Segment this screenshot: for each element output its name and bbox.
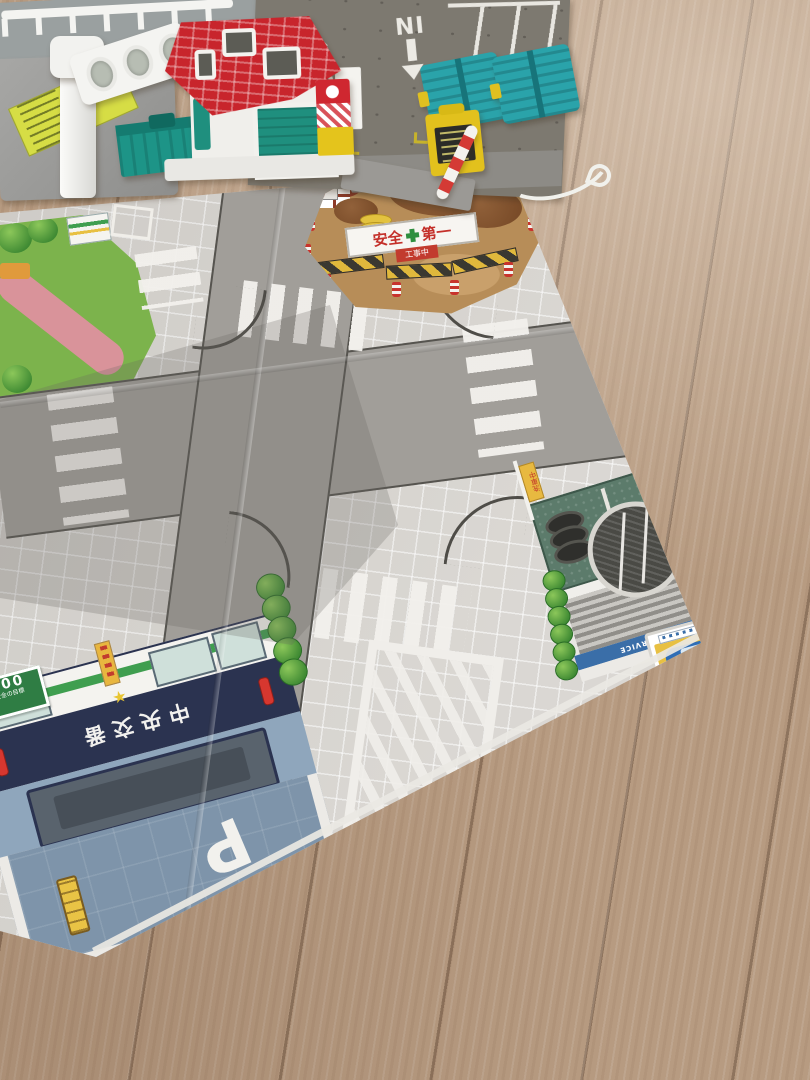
signal-socket [82,52,121,95]
traffic-cone [504,262,513,277]
police-station-block: 000 安全の目標 ★ 中央交番 P [0,613,349,979]
park-tree [28,217,58,243]
barricade [317,254,384,276]
red-white-box [315,79,351,130]
yellow-box [317,127,354,156]
flag-pole [658,410,681,474]
traffic-cone [528,216,537,231]
barricade [386,262,453,279]
traffic-cone [392,282,401,297]
lift-tab [489,83,502,100]
box-logo-band [315,79,350,104]
traffic-cone [450,280,459,295]
drum-highlight [619,512,626,590]
yellow-bench [56,875,91,936]
arrow-stem [406,39,417,62]
roof-skylight [262,46,301,79]
park-tree [2,365,32,393]
roof-skylight [194,49,216,80]
box-pattern [316,103,351,130]
window-pane [660,522,683,550]
yellow-mark [706,508,720,526]
park-path [0,262,131,381]
banner-text-left: 安全 [371,226,403,251]
signal-socket [118,41,157,84]
fire-station [163,15,346,179]
in-label: IN [393,11,425,37]
green-cross-icon [405,228,419,242]
roof-skylight [222,28,257,57]
photo-toy-town-scene: 安全 第一 工事中 [0,0,810,1080]
banner-text-right: 第一 [420,220,452,245]
box-handle [438,103,465,116]
road-box-marking [110,204,154,241]
bus-stop-sign-marking [66,212,111,246]
drum-highlight [642,505,649,583]
red-lamp-icon [0,747,10,777]
crosswalk-northwest [134,246,203,310]
carwash-window [655,512,706,555]
lift-tab [417,91,430,108]
window-pane [678,517,701,545]
curb-corner-se [444,488,530,574]
bush [554,658,580,682]
mat-white-edge [684,445,757,645]
carwash-flag: 洗車中 [660,412,686,453]
playground-equipment [0,263,30,279]
carwash-building: WASH SERVICE 洗車中 洗車中 [528,458,737,682]
red-lamp-icon [257,676,275,706]
car-lift-ramp [491,43,581,125]
